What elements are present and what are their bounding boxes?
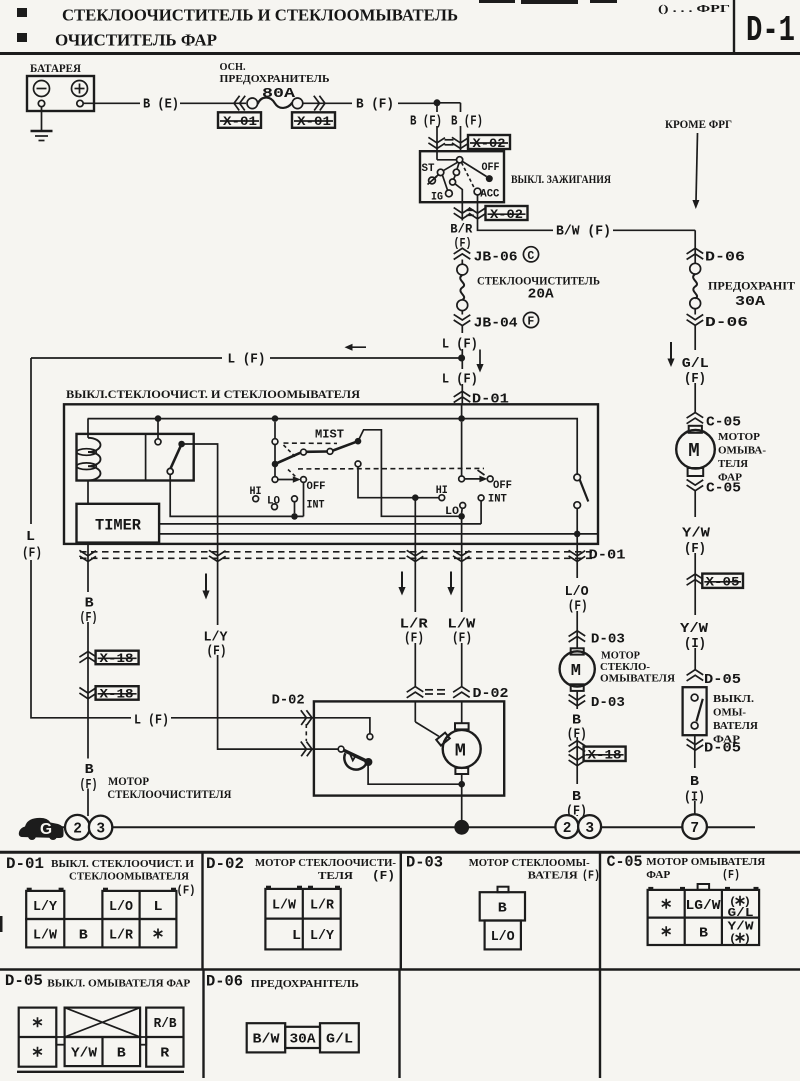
svg-text:(F): (F) (80, 778, 98, 793)
svg-text:КРОМЕ ФРГ: КРОМЕ ФРГ (665, 119, 732, 131)
svg-text:(F): (F) (207, 645, 227, 660)
svg-text:B (F): B (F) (356, 97, 394, 113)
svg-text:L (F): L (F) (442, 337, 478, 353)
svg-text:B: B (79, 929, 88, 944)
svg-text:2: 2 (563, 821, 572, 837)
svg-text:ВАТЕЛЯ: ВАТЕЛЯ (713, 720, 758, 732)
svg-text:IG: IG (431, 192, 443, 204)
svg-text:L/Y: L/Y (310, 929, 335, 944)
svg-text:80A: 80A (262, 87, 296, 102)
svg-text:(F): (F) (582, 869, 600, 883)
svg-text:X-01: X-01 (223, 115, 257, 129)
svg-text:(F): (F) (452, 632, 472, 647)
svg-text:(F): (F) (684, 542, 706, 557)
svg-text:Y/W: Y/W (728, 921, 754, 934)
svg-text:D-03: D-03 (591, 696, 625, 711)
svg-text:B/W: B/W (253, 1033, 281, 1048)
svg-text:ВЫКЛ. ЗАЖИГАНИЯ: ВЫКЛ. ЗАЖИГАНИЯ (511, 174, 612, 186)
svg-text:МОТОР СТЕКЛООМЫ-: МОТОР СТЕКЛООМЫ- (469, 857, 590, 869)
svg-text:D-02: D-02 (272, 694, 305, 709)
svg-text:L: L (26, 530, 35, 545)
svg-text:D-06: D-06 (206, 973, 243, 991)
svg-text:(F): (F) (372, 869, 395, 883)
svg-text:B (F): B (F) (410, 114, 442, 130)
svg-text:C-05: C-05 (706, 416, 741, 431)
svg-text:ПРЕДОХРАНIТЕЛЬ: ПРЕДОХРАНIТЕЛЬ (251, 978, 359, 990)
svg-text:X-01: X-01 (297, 115, 331, 129)
svg-text:L (F): L (F) (134, 713, 169, 729)
svg-text:B: B (85, 763, 94, 778)
svg-text:30A: 30A (290, 1033, 317, 1048)
svg-text:INT: INT (488, 494, 507, 506)
svg-text:D-03: D-03 (406, 854, 443, 872)
svg-text:D-1: D-1 (746, 10, 795, 51)
svg-text:D-06: D-06 (705, 316, 748, 331)
svg-text:HI: HI (436, 485, 448, 497)
svg-text:B: B (572, 790, 581, 805)
svg-text:G/L: G/L (728, 907, 754, 920)
svg-text:L: L (154, 900, 163, 915)
svg-text:7: 7 (690, 821, 699, 837)
svg-text:ST: ST (422, 163, 435, 175)
svg-text:B (F): B (F) (451, 114, 483, 130)
svg-text:G/L: G/L (682, 357, 709, 372)
svg-text:X-02: X-02 (473, 137, 506, 151)
svg-text:JB-04: JB-04 (474, 316, 518, 331)
svg-text:D-02: D-02 (206, 855, 244, 873)
svg-text:МОТОР: МОТОР (718, 431, 760, 443)
svg-text:20A: 20A (528, 288, 555, 303)
svg-text:(I): (I) (684, 637, 706, 652)
svg-text:ACC: ACC (480, 188, 499, 200)
svg-text:F: F (527, 316, 534, 329)
svg-text:L/W: L/W (447, 618, 476, 633)
svg-text:ВЫКЛ.СТЕКЛООЧИСТ. И СТЕКЛООМЫВ: ВЫКЛ.СТЕКЛООЧИСТ. И СТЕКЛООМЫВАТЕЛЯ (66, 387, 360, 401)
svg-text:СТЕКЛООЧИСТИТЕЛЬ: СТЕКЛООЧИСТИТЕЛЬ (477, 275, 600, 287)
svg-text:LG/W: LG/W (686, 899, 722, 914)
svg-text:ОМЫВА-: ОМЫВА- (718, 445, 766, 457)
svg-text:X-02: X-02 (490, 208, 523, 222)
svg-text:ТЕЛЯ: ТЕЛЯ (718, 458, 748, 470)
svg-text:B (E): B (E) (143, 97, 179, 113)
svg-text:M: M (688, 440, 699, 462)
svg-text:G: G (40, 821, 52, 838)
svg-text:СТЕКЛО-: СТЕКЛО- (600, 662, 651, 673)
svg-text:LO: LO (267, 496, 280, 508)
svg-text:L/O: L/O (565, 585, 589, 600)
svg-text:(F): (F) (684, 372, 706, 387)
svg-text:МОТОР СТЕКЛООЧИСТИ-: МОТОР СТЕКЛООЧИСТИ- (255, 857, 396, 869)
svg-text:МОТОР: МОТОР (108, 776, 149, 788)
svg-text:L/O: L/O (109, 900, 133, 915)
svg-text:L/R: L/R (400, 618, 429, 633)
svg-text:Y/W: Y/W (680, 622, 709, 637)
svg-text:D-06: D-06 (705, 251, 745, 266)
svg-text:L/R: L/R (310, 899, 335, 914)
svg-text:() . . . ФРГ: () . . . ФРГ (658, 3, 730, 15)
svg-text:INT: INT (307, 500, 325, 512)
svg-text:B: B (690, 775, 699, 790)
svg-text:(I): (I) (684, 791, 705, 806)
svg-text:B: B (699, 927, 708, 942)
svg-text:30A: 30A (735, 294, 766, 310)
svg-text:B/W (F): B/W (F) (556, 224, 611, 240)
svg-text:ФАР: ФАР (646, 869, 670, 881)
svg-text:D-01: D-01 (6, 855, 44, 873)
svg-text:C: C (527, 250, 534, 263)
svg-text:D-05: D-05 (5, 972, 43, 990)
svg-text:СТЕКЛООЧИСТИТЕЛЬ И СТЕКЛООМЫВА: СТЕКЛООЧИСТИТЕЛЬ И СТЕКЛООМЫВАТЕЛЬ (62, 6, 458, 25)
svg-text:X-18: X-18 (100, 687, 134, 701)
svg-text:3: 3 (585, 821, 594, 837)
svg-text:D-05: D-05 (704, 742, 741, 757)
svg-text:B: B (117, 1047, 126, 1062)
svg-text:D-03: D-03 (591, 633, 625, 648)
svg-text:X-18: X-18 (100, 652, 134, 666)
svg-text:M: M (455, 741, 466, 762)
svg-text:3: 3 (96, 822, 105, 838)
svg-text:OFF: OFF (307, 481, 326, 493)
svg-text:ОСН.: ОСН. (220, 62, 246, 73)
svg-text:(F): (F) (177, 884, 196, 898)
svg-text:L/Y: L/Y (33, 900, 58, 915)
svg-text:OFF: OFF (493, 480, 512, 492)
svg-text:ВАТЕЛЯ: ВАТЕЛЯ (528, 870, 578, 882)
svg-text:L/Y: L/Y (204, 631, 229, 646)
svg-text:МОТОР: МОТОР (601, 651, 641, 662)
svg-text:D-02: D-02 (473, 687, 509, 702)
svg-text:C-05: C-05 (607, 853, 643, 871)
svg-text:D-05: D-05 (704, 673, 741, 688)
svg-text:B: B (572, 714, 581, 729)
svg-text:HI: HI (250, 486, 262, 498)
svg-text:L (F): L (F) (228, 352, 266, 368)
svg-text:Y/W: Y/W (682, 527, 711, 542)
svg-text:Y/W: Y/W (71, 1047, 98, 1062)
svg-text:ОМЫВАТЕЛЯ: ОМЫВАТЕЛЯ (600, 674, 675, 685)
svg-text:(F): (F) (568, 600, 588, 615)
svg-text:L/R: L/R (109, 929, 134, 944)
svg-text:L/O: L/O (491, 930, 515, 945)
svg-text:X-05: X-05 (706, 575, 740, 589)
svg-text:M: M (571, 662, 581, 681)
svg-text:(F): (F) (404, 632, 424, 647)
svg-text:G/L: G/L (326, 1033, 353, 1048)
svg-text:JB-06: JB-06 (474, 251, 518, 266)
svg-text:LO: LO (445, 506, 459, 518)
svg-text:L/W: L/W (272, 899, 297, 914)
svg-text:МОТОР ОМЫВАТЕЛЯ: МОТОР ОМЫВАТЕЛЯ (646, 856, 765, 868)
svg-text:B: B (85, 597, 94, 612)
svg-text:OFF: OFF (482, 162, 500, 174)
svg-text:R: R (160, 1047, 170, 1062)
svg-text:B: B (498, 902, 507, 917)
svg-text:L/W: L/W (33, 929, 58, 944)
svg-text:(F): (F) (22, 547, 42, 562)
svg-text:C-05: C-05 (706, 482, 741, 497)
svg-text:MIST: MIST (315, 429, 344, 442)
svg-text:2: 2 (73, 822, 82, 838)
svg-text:ОЧИСТИТЕЛЬ ФАР: ОЧИСТИТЕЛЬ ФАР (55, 31, 217, 50)
svg-text:D-01: D-01 (589, 549, 626, 564)
svg-text:БАТАРЕЯ: БАТАРЕЯ (30, 63, 82, 75)
svg-text:L (F): L (F) (442, 372, 478, 388)
svg-text:ВЫКЛ. ОМЫВАТЕЛЯ ФАР: ВЫКЛ. ОМЫВАТЕЛЯ ФАР (47, 978, 190, 990)
svg-text:ТЕЛЯ: ТЕЛЯ (318, 870, 353, 882)
svg-text:TIMER: TIMER (95, 517, 141, 535)
svg-text:(F): (F) (80, 611, 98, 626)
svg-text:L: L (292, 929, 301, 944)
svg-text:ВЫКЛ.: ВЫКЛ. (713, 693, 754, 705)
svg-text:ПРЕДОХРАНИТЕЛЬ: ПРЕДОХРАНИТЕЛЬ (220, 74, 330, 85)
svg-text:X-18: X-18 (588, 749, 622, 763)
svg-text:СТЕКЛООМЫВАТЕЛЯ: СТЕКЛООМЫВАТЕЛЯ (69, 871, 189, 883)
svg-text:ПРЕДОХРАНIТ: ПРЕДОХРАНIТ (708, 281, 795, 293)
svg-text:СТЕКЛООЧИСТИТЕЛЯ: СТЕКЛООЧИСТИТЕЛЯ (107, 789, 232, 801)
svg-text:ВЫКЛ. СТЕКЛООЧИСТ. И: ВЫКЛ. СТЕКЛООЧИСТ. И (51, 858, 194, 870)
svg-text:ОМЫ-: ОМЫ- (713, 707, 746, 719)
svg-text:B/R: B/R (450, 222, 472, 237)
svg-text:(F): (F) (722, 868, 740, 882)
svg-text:R/B: R/B (154, 1017, 177, 1032)
